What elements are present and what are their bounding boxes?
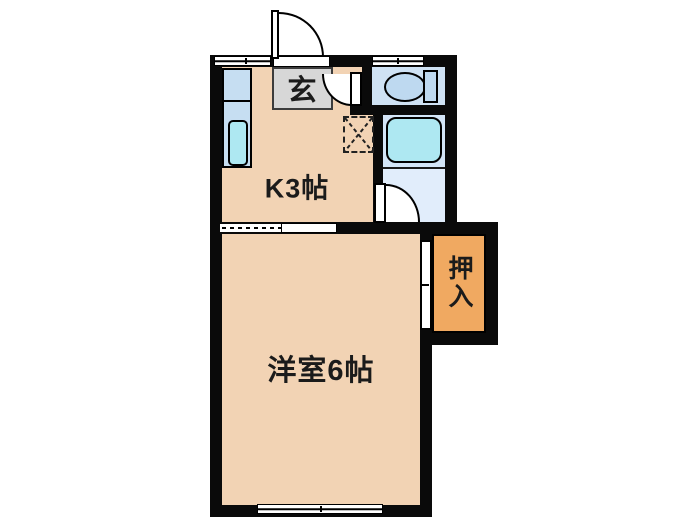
entrance-door-threshold [273,56,330,67]
kitchen-label: K3帖 [265,167,330,206]
closet-sliding-door [420,240,432,330]
kitchen-sink [228,120,248,166]
wall-toilet-bottom [350,105,445,115]
wall-closet-right [486,222,498,345]
toilet-icon [384,72,426,102]
window-toilet [372,56,424,66]
bathtub [386,117,442,163]
bathtub-platform-edge [383,167,445,169]
wall-closet-bottom [420,333,498,345]
bathroom-door-leaf [374,183,386,223]
partition-door-track [220,224,282,232]
wall-right-upper [445,55,457,235]
counter-divider [224,100,250,102]
kitchen-counter [222,68,252,168]
floor-plan: 玄 K3帖 洋室6帖 押入 [0,0,700,525]
western-room-label: 洋室6帖 [267,347,374,389]
entrance-door-leaf [271,10,279,59]
window-room-bottom [257,504,383,514]
window-kitchen-top [214,56,271,66]
closet-label: 押入 [441,255,477,311]
refrigerator-space [343,116,374,153]
entrance-label: 玄 [287,67,316,109]
entrance-door-arc [279,12,324,57]
interior-door-leaf [350,72,362,106]
partition-sliding-door [281,223,337,233]
toilet-tank [423,70,438,103]
wall-left [210,55,222,517]
